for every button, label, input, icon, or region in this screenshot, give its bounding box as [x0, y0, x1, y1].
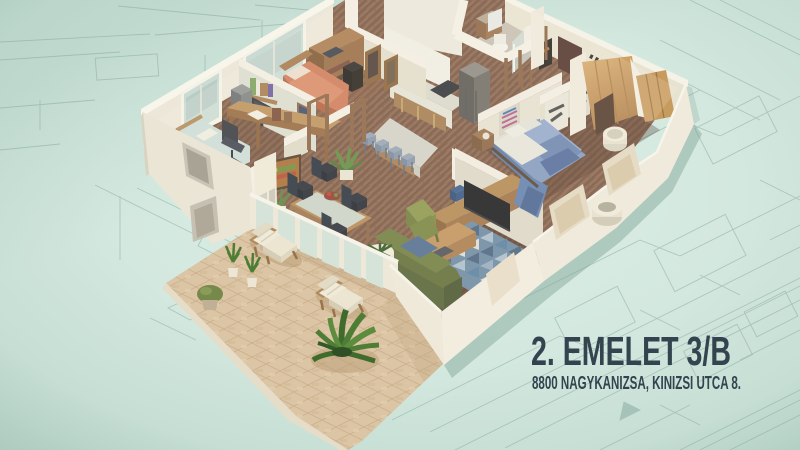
svg-text:2. EMELET 3/B: 2. EMELET 3/B	[531, 328, 731, 374]
svg-text:8800 NAGYKANIZSA, KINIZSI UTCA: 8800 NAGYKANIZSA, KINIZSI UTCA 8.	[532, 372, 741, 393]
